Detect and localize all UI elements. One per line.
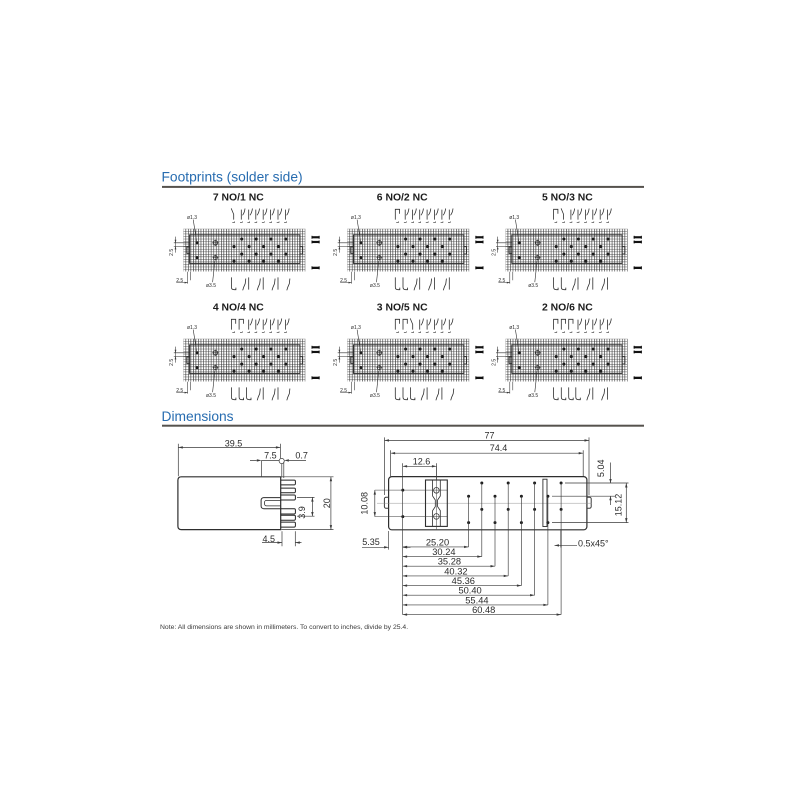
- svg-text:ø3.5: ø3.5: [370, 393, 380, 399]
- svg-text:ø1.3: ø1.3: [187, 325, 197, 331]
- svg-text:4 NO/4 NC: 4 NO/4 NC: [213, 303, 264, 314]
- svg-text:2.5: 2.5: [498, 278, 505, 284]
- svg-text:7.5: 7.5: [264, 450, 277, 460]
- svg-text:2.5: 2.5: [491, 359, 497, 366]
- svg-text:2.5: 2.5: [169, 249, 175, 256]
- svg-text:ø3.5: ø3.5: [206, 283, 216, 289]
- svg-text:74.4: 74.4: [490, 443, 508, 453]
- svg-text:45.36: 45.36: [452, 576, 475, 586]
- svg-text:5 NO/3 NC: 5 NO/3 NC: [542, 193, 593, 204]
- svg-text:2.5: 2.5: [176, 278, 183, 284]
- svg-text:ø1.3: ø1.3: [351, 215, 361, 221]
- svg-text:7 NO/1 NC: 7 NO/1 NC: [213, 193, 264, 204]
- svg-text:5.35: 5.35: [362, 537, 380, 547]
- svg-text:ø3.5: ø3.5: [206, 393, 216, 399]
- svg-text:5.04: 5.04: [596, 460, 606, 478]
- svg-text:2.5: 2.5: [176, 388, 183, 394]
- svg-text:2.5: 2.5: [333, 359, 339, 366]
- svg-text:12.6: 12.6: [413, 456, 431, 466]
- svg-text:77: 77: [484, 430, 494, 440]
- svg-text:20: 20: [322, 498, 332, 508]
- svg-text:ø1.3: ø1.3: [351, 325, 361, 331]
- svg-text:0.5x45°: 0.5x45°: [578, 538, 609, 548]
- svg-text:2 NO/6 NC: 2 NO/6 NC: [542, 303, 593, 314]
- svg-text:Footprints (solder side): Footprints (solder side): [162, 169, 303, 184]
- svg-text:ø3.5: ø3.5: [528, 393, 538, 399]
- svg-text:2.5: 2.5: [340, 388, 347, 394]
- svg-text:Dimensions: Dimensions: [162, 409, 234, 424]
- svg-text:ø1.3: ø1.3: [187, 215, 197, 221]
- svg-text:2.5: 2.5: [333, 249, 339, 256]
- svg-text:6 NO/2 NC: 6 NO/2 NC: [377, 193, 428, 204]
- svg-text:55.44: 55.44: [465, 595, 488, 605]
- svg-text:50.40: 50.40: [458, 586, 481, 596]
- svg-text:ø1.3: ø1.3: [509, 325, 519, 331]
- svg-text:40.32: 40.32: [444, 566, 467, 576]
- svg-text:ø3.5: ø3.5: [528, 283, 538, 289]
- svg-text:3.9: 3.9: [297, 506, 307, 519]
- svg-text:30.24: 30.24: [432, 547, 455, 557]
- svg-text:39.5: 39.5: [225, 439, 243, 449]
- svg-text:35.28: 35.28: [438, 557, 461, 567]
- svg-text:25.20: 25.20: [426, 537, 449, 547]
- svg-text:60.48: 60.48: [472, 605, 495, 615]
- svg-text:Note: All dimensions are shown: Note: All dimensions are shown in millim…: [160, 624, 408, 631]
- svg-text:10.08: 10.08: [359, 492, 369, 515]
- svg-text:ø1.3: ø1.3: [509, 215, 519, 221]
- svg-text:ø3.5: ø3.5: [370, 283, 380, 289]
- svg-text:3 NO/5 NC: 3 NO/5 NC: [377, 303, 428, 314]
- svg-text:15.12: 15.12: [614, 494, 624, 517]
- svg-text:2.5: 2.5: [340, 278, 347, 284]
- svg-text:2.5: 2.5: [169, 359, 175, 366]
- svg-text:2.5: 2.5: [498, 388, 505, 394]
- svg-text:0.7: 0.7: [295, 450, 308, 460]
- svg-text:4.5: 4.5: [263, 534, 276, 544]
- svg-text:2.5: 2.5: [491, 249, 497, 256]
